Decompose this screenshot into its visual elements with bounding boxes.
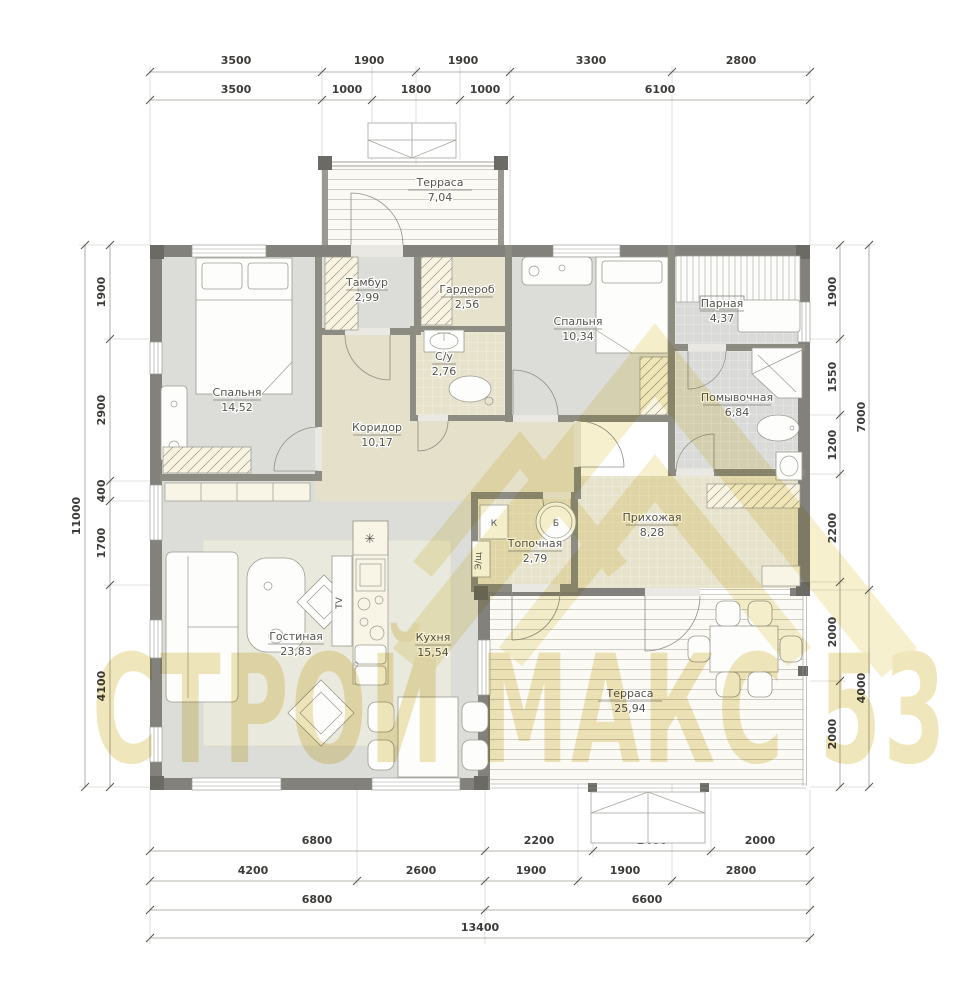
svg-text:4,37: 4,37 <box>710 312 735 325</box>
svg-text:10,34: 10,34 <box>562 330 594 343</box>
svg-text:Коридор: Коридор <box>352 421 402 434</box>
watermark-text: СТРОЙ МАКС 53 <box>92 623 948 798</box>
dim-label: 2800 <box>726 864 757 877</box>
dim-label: 6600 <box>632 893 663 906</box>
bathroom-sink-icon <box>424 330 464 352</box>
sauna-shelf <box>738 300 800 332</box>
window <box>192 245 266 257</box>
dim-label: 1900 <box>448 54 479 67</box>
dim-label: 1550 <box>826 361 839 392</box>
dimensions-bottom: 6800 2200 2400 2000 4200 2600 1900 1900 … <box>238 834 776 934</box>
svg-text:Терраса: Терраса <box>416 176 464 189</box>
room-label-bathroom: С/у2,76 <box>432 350 457 378</box>
dresser-hatch <box>163 447 251 473</box>
svg-text:Парная: Парная <box>701 297 744 310</box>
svg-text:Спальня: Спальня <box>213 386 262 399</box>
svg-text:2,99: 2,99 <box>355 291 380 304</box>
tambour-closet-hatch <box>325 257 358 330</box>
svg-text:2,76: 2,76 <box>432 365 457 378</box>
svg-text:С/у: С/у <box>435 350 453 363</box>
dimensions-top-row1: 3500 1900 1900 3300 2800 <box>221 54 757 67</box>
double-bed <box>196 258 292 394</box>
svg-text:7,04: 7,04 <box>428 191 453 204</box>
dim-label: 6800 <box>302 893 333 906</box>
washbasin-icon <box>776 452 802 480</box>
fridge-symbol: ✳ <box>365 532 376 547</box>
dim-label: 1000 <box>332 83 363 96</box>
dim-label: 4200 <box>238 864 269 877</box>
dim-label: 400 <box>95 479 108 502</box>
dim-label: 1900 <box>826 276 839 307</box>
dim-label: 1900 <box>95 276 108 307</box>
floor-plan-page: 3500 1900 1900 3300 2800 3500 1000 1800 … <box>0 0 959 1000</box>
svg-text:8,28: 8,28 <box>640 526 665 539</box>
dim-label: 2000 <box>745 834 776 847</box>
svg-text:Гардероб: Гардероб <box>439 283 495 296</box>
bedroom-small-dresser <box>522 257 592 285</box>
dim-label: 11000 <box>70 497 83 536</box>
dim-label: 1200 <box>826 429 839 460</box>
svg-text:14,52: 14,52 <box>221 401 253 414</box>
dim-label: 1900 <box>516 864 547 877</box>
dim-label: 3300 <box>576 54 607 67</box>
sauna-bench <box>676 256 800 302</box>
dim-label: 2200 <box>524 834 555 847</box>
dim-label: 3500 <box>221 54 252 67</box>
svg-text:2,56: 2,56 <box>455 298 480 311</box>
washroom-sink-icon <box>757 415 799 441</box>
window <box>553 245 620 257</box>
svg-text:10,17: 10,17 <box>361 436 393 449</box>
svg-text:Тамбур: Тамбур <box>345 276 388 289</box>
dim-label: 1700 <box>95 527 108 558</box>
dim-label: 13400 <box>461 921 500 934</box>
window <box>150 485 162 540</box>
dim-label: 2600 <box>406 864 437 877</box>
dimensions-top-row2: 3500 1000 1800 1000 6100 <box>221 83 676 96</box>
tv-label: TV <box>335 596 345 609</box>
floor-plan-drawing: 3500 1900 1900 3300 2800 3500 1000 1800 … <box>0 0 959 1000</box>
dim-label: 6100 <box>645 83 676 96</box>
dim-label: 7000 <box>855 401 868 432</box>
living-cabinet-row <box>165 483 310 501</box>
dim-label: 2900 <box>95 394 108 425</box>
terrace-top-steps <box>368 123 456 158</box>
svg-text:Спальня: Спальня <box>554 315 603 328</box>
dim-label: 2800 <box>726 54 757 67</box>
dim-label: 1900 <box>354 54 385 67</box>
dim-label: 1900 <box>610 864 641 877</box>
dim-label: 1000 <box>470 83 501 96</box>
dim-label: 6800 <box>302 834 333 847</box>
terrace-main-steps <box>591 792 705 843</box>
window <box>150 342 162 374</box>
dim-label: 3500 <box>221 83 252 96</box>
dim-label: 1800 <box>401 83 432 96</box>
